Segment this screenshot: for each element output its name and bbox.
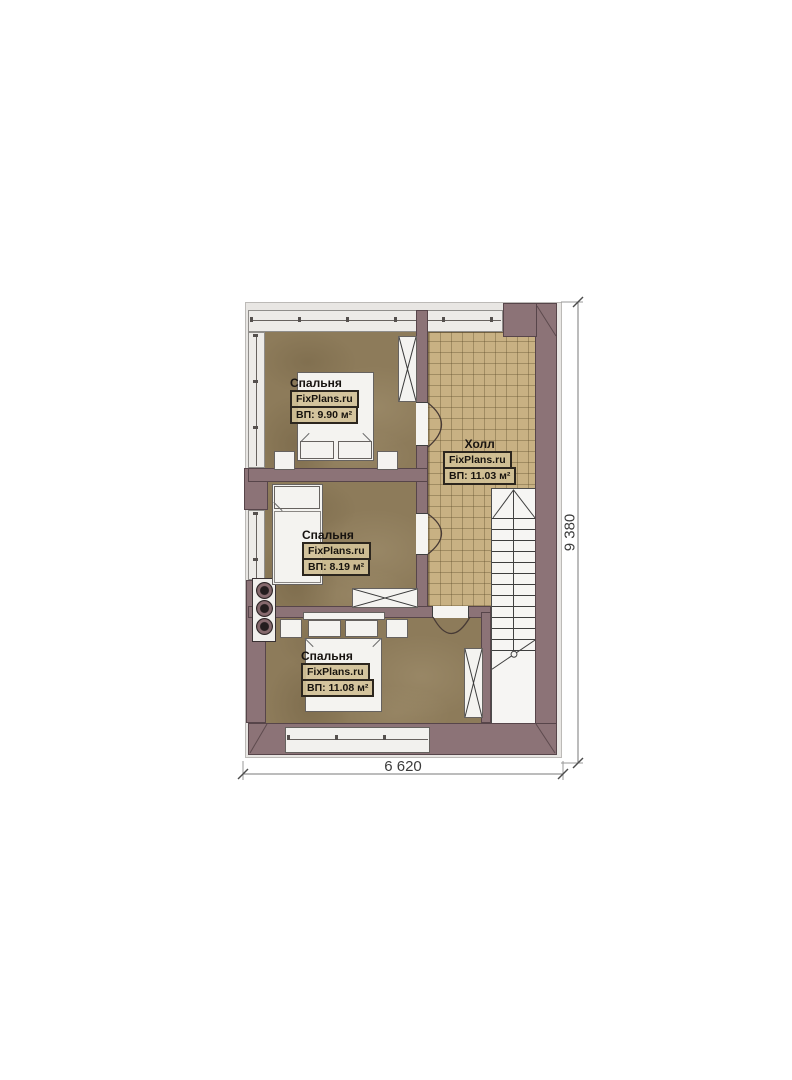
room-label-hall: Холл FixPlans.ru ВП: 11.03 м² [443, 437, 516, 485]
room-brand: FixPlans.ru [290, 390, 359, 408]
door-opening-bedroom-bottom [432, 606, 469, 618]
wardrobe-cross-icon [353, 589, 417, 607]
floorplan-canvas: Спальня FixPlans.ru ВП: 9.90 м² Холл Fix… [0, 0, 792, 1080]
flue-circle-icon [256, 600, 273, 617]
staircase [491, 488, 536, 723]
wardrobe-bottom-bedroom [464, 648, 483, 718]
room-label-bedroom-top: Спальня FixPlans.ru ВП: 9.90 м² [290, 376, 359, 424]
room-name: Спальня [301, 649, 374, 663]
window-bottom [285, 727, 430, 753]
room-brand: FixPlans.ru [301, 663, 370, 681]
wardrobe-cross-icon [465, 649, 482, 717]
wardrobe-cross-icon [399, 337, 416, 401]
window-band-top [248, 310, 503, 332]
flue-circle-icon [256, 582, 273, 599]
pillow [300, 441, 334, 459]
room-brand: FixPlans.ru [443, 451, 512, 469]
wardrobe-middle-bedroom [352, 588, 418, 608]
room-name: Спальня [290, 376, 359, 390]
pillow [308, 620, 341, 637]
chimney-block [252, 578, 276, 642]
room-label-bedroom-middle: Спальня FixPlans.ru ВП: 8.19 м² [302, 528, 371, 576]
nightstand [280, 619, 302, 638]
dimension-tick-icon [238, 769, 248, 779]
mullion-ticks [250, 317, 501, 322]
dimension-tick-icon [573, 758, 583, 768]
mullion-ticks [253, 334, 258, 466]
room-name: Холл [443, 437, 516, 451]
door-opening-bedroom-top [416, 402, 428, 446]
room-label-bedroom-bottom: Спальня FixPlans.ru ВП: 11.08 м² [301, 649, 374, 697]
dimension-tick-icon [558, 769, 568, 779]
stair-break-marker-icon [511, 651, 517, 657]
room-area: ВП: 11.08 м² [301, 679, 374, 697]
mullion-ticks [287, 735, 428, 740]
dimension-width-label: 6 620 [363, 758, 443, 775]
room-area: ВП: 11.03 м² [443, 467, 516, 485]
bed-headboard [303, 612, 385, 620]
wall-between-bedrooms-1-2 [248, 468, 428, 482]
wardrobe-top-bedroom [398, 336, 417, 402]
window-band-left-middle [248, 510, 265, 580]
window-band-left-upper [248, 332, 265, 468]
mullion-ticks [253, 512, 258, 578]
nightstand [386, 619, 408, 638]
wall-bedrooms-hall [416, 310, 428, 610]
pillow [274, 486, 320, 509]
dimension-tick-icon [573, 297, 583, 307]
room-name: Спальня [302, 528, 371, 542]
nightstand [377, 451, 398, 470]
pillow [345, 620, 378, 637]
pillow [338, 441, 372, 459]
door-opening-bedroom-middle [416, 513, 428, 555]
nightstand [274, 451, 295, 470]
room-brand: FixPlans.ru [302, 542, 371, 560]
dimension-height-label: 9 380 [562, 493, 579, 573]
wall-top-right [503, 303, 537, 337]
room-area: ВП: 8.19 м² [302, 558, 370, 576]
stair-markings [492, 489, 536, 723]
flue-circle-icon [256, 618, 273, 635]
wall-right [535, 303, 557, 755]
room-area: ВП: 9.90 м² [290, 406, 358, 424]
